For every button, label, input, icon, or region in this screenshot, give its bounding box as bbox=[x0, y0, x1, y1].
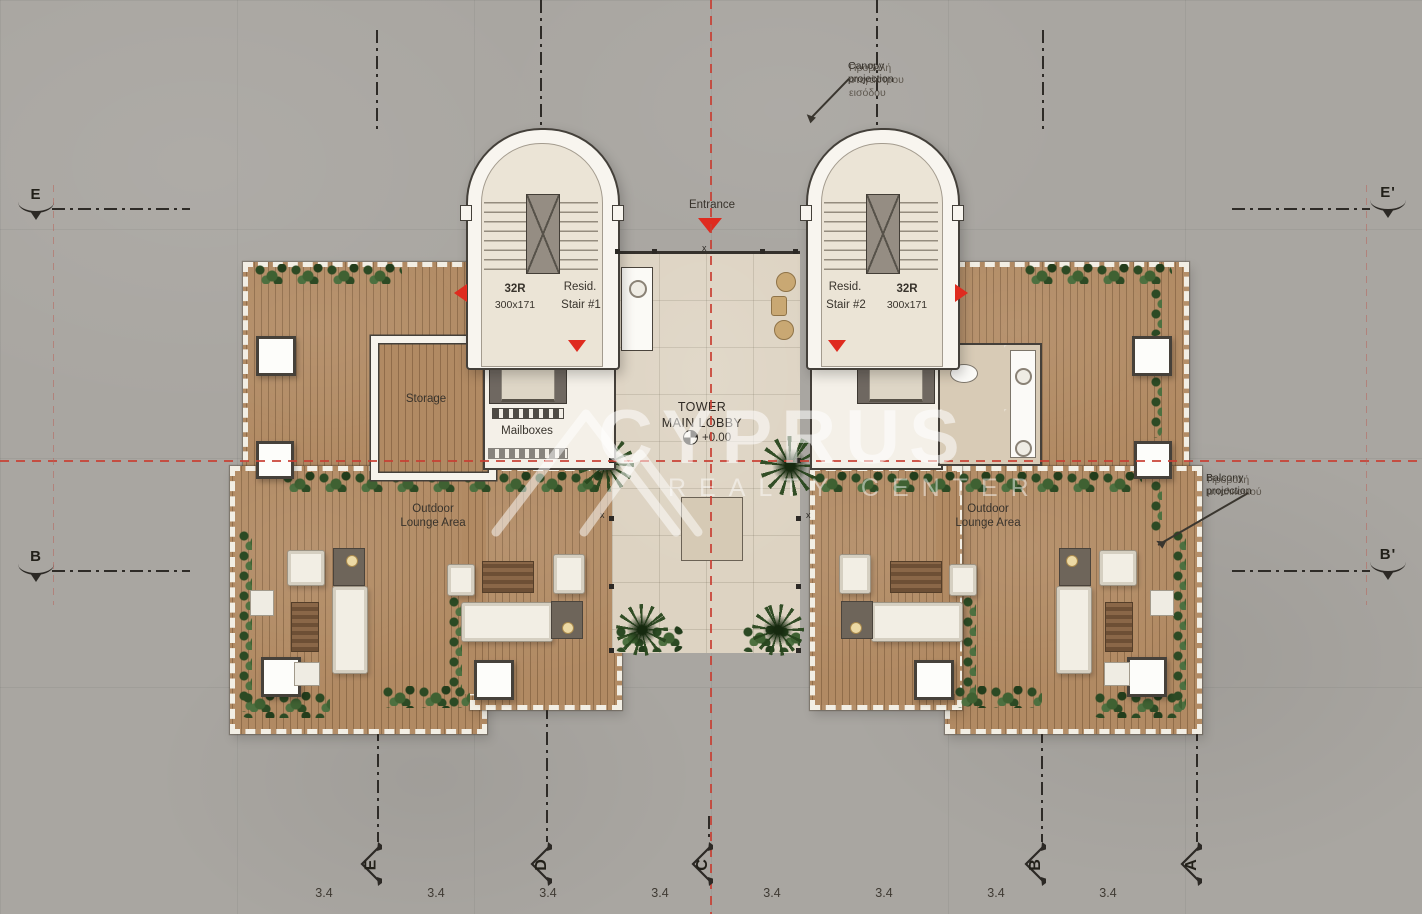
stair-core bbox=[866, 194, 900, 274]
sink bbox=[1015, 440, 1032, 457]
balcony-gr-line1: Προβολή bbox=[1207, 474, 1249, 486]
leader-arrow-icon bbox=[801, 109, 816, 124]
canopy-annotation-gr: Προβολή στεγάστρου εισόδου bbox=[849, 62, 904, 100]
stair-left-name2: Stair #1 bbox=[548, 298, 614, 312]
arch-tab bbox=[952, 205, 964, 221]
column bbox=[609, 516, 614, 521]
lounge-right-line1: Outdoor bbox=[967, 503, 1009, 515]
stair-right-name2: Stair #2 bbox=[813, 298, 879, 312]
lounge-right-line2: Lounge Area bbox=[955, 517, 1020, 529]
mailbox-units bbox=[492, 408, 564, 419]
coffee-table bbox=[482, 561, 534, 593]
column bbox=[652, 249, 657, 254]
stair-treads bbox=[484, 194, 526, 272]
armchair bbox=[553, 554, 585, 594]
marker-arrow-icon bbox=[1382, 571, 1394, 580]
plant-strip bbox=[1148, 376, 1162, 438]
armchair bbox=[839, 554, 871, 594]
lobby-rug bbox=[681, 497, 743, 561]
lobby-level: +0.00 bbox=[702, 431, 746, 445]
grid-letter: A bbox=[1183, 859, 1201, 871]
column bbox=[615, 249, 620, 254]
dimension-label: 3.4 bbox=[864, 886, 904, 900]
side-table bbox=[1150, 590, 1174, 616]
grid-line bbox=[376, 30, 378, 130]
coffee-table bbox=[890, 561, 942, 593]
exit-arrow-down-icon bbox=[568, 340, 586, 352]
stair-right-name1: Resid. bbox=[813, 280, 877, 294]
side-table bbox=[1104, 662, 1130, 686]
lounge-left-line1: Outdoor bbox=[412, 503, 454, 515]
grid-letter: B bbox=[1027, 859, 1045, 871]
plant-strip bbox=[380, 686, 470, 708]
mailboxes-label: Mailboxes bbox=[492, 424, 562, 438]
grid-letter: C bbox=[694, 859, 712, 871]
marker-arrow-icon bbox=[30, 573, 42, 582]
grid-line bbox=[52, 208, 190, 210]
lobby-title-line1: TOWER bbox=[678, 400, 726, 414]
lounge-left-line2: Lounge Area bbox=[400, 517, 465, 529]
plant-strip bbox=[236, 530, 252, 712]
canopy-projection-annotation: Canopy projection Προβολή στεγάστρου εισ… bbox=[848, 60, 938, 85]
section-marker-e-right: E' bbox=[1366, 184, 1410, 218]
exit-arrow-down-icon bbox=[828, 340, 846, 352]
lobby-title: TOWER MAIN LOBBY bbox=[652, 400, 752, 431]
armchair bbox=[1099, 550, 1137, 586]
column bbox=[609, 648, 614, 653]
column bbox=[609, 584, 614, 589]
leader-line bbox=[809, 78, 849, 119]
column bbox=[796, 584, 801, 589]
dimension-label: 3.4 bbox=[640, 886, 680, 900]
plant-strip bbox=[812, 472, 1142, 492]
plant-strip bbox=[952, 686, 1042, 708]
dimension-label: 3.4 bbox=[528, 886, 568, 900]
stair-treads bbox=[896, 194, 938, 272]
stair-treads bbox=[824, 194, 866, 272]
canopy-gr-line3: εισόδου bbox=[849, 87, 886, 99]
grid-line bbox=[1041, 730, 1043, 842]
grid-line bbox=[1232, 208, 1370, 210]
grid-marker-a: A bbox=[1176, 842, 1208, 888]
stool bbox=[774, 320, 794, 340]
dimension-label: 3.4 bbox=[976, 886, 1016, 900]
planter-box bbox=[474, 660, 514, 700]
grid-marker-d: D bbox=[526, 842, 558, 888]
grid-line bbox=[1042, 30, 1044, 130]
coffee-table bbox=[1105, 602, 1133, 652]
plant-strip bbox=[252, 264, 402, 284]
grid-marker-e: E bbox=[356, 842, 388, 888]
dimension-label: 3.4 bbox=[1088, 886, 1128, 900]
stair-left-name1: Resid. bbox=[548, 280, 612, 294]
plant-strip bbox=[1170, 530, 1186, 712]
column bbox=[793, 249, 798, 254]
door-threshold bbox=[488, 448, 568, 459]
dimension-label: 3.4 bbox=[304, 886, 344, 900]
grid-line bbox=[377, 728, 379, 842]
lamp bbox=[850, 622, 862, 634]
grid-marker-b: B bbox=[1020, 842, 1052, 888]
grid-letter: D bbox=[533, 859, 551, 871]
exit-arrow-left-icon bbox=[454, 284, 467, 302]
lamp bbox=[562, 622, 574, 634]
column bbox=[796, 516, 801, 521]
axis-line-red-horizontal bbox=[0, 460, 1422, 462]
lamp bbox=[346, 555, 358, 567]
planter-box bbox=[256, 336, 296, 376]
stair-treads bbox=[556, 194, 598, 272]
dimension-label: 3.4 bbox=[416, 886, 456, 900]
planter-box bbox=[914, 660, 954, 700]
storage-label: Storage bbox=[391, 392, 461, 406]
planter-box bbox=[1132, 336, 1172, 376]
grid-line bbox=[546, 706, 548, 842]
stair-core bbox=[526, 194, 560, 274]
stool bbox=[771, 296, 787, 316]
armchair bbox=[949, 564, 977, 596]
balcony-gr-line2: μπαλκονιού bbox=[1207, 486, 1262, 498]
canopy-gr-line1: Προβολή bbox=[849, 62, 891, 74]
column bbox=[760, 249, 765, 254]
sofa bbox=[461, 602, 553, 642]
lounge-label-left: Outdoor Lounge Area bbox=[383, 502, 483, 531]
arch-tab bbox=[612, 205, 624, 221]
marker-arrow-icon bbox=[1382, 209, 1394, 218]
side-console bbox=[1059, 548, 1091, 586]
stool bbox=[776, 272, 796, 292]
section-marker-e-left: E bbox=[14, 186, 58, 220]
planter-box bbox=[1127, 657, 1167, 697]
survey-x-mark: x bbox=[600, 510, 605, 520]
balcony-projection-annotation: Balcony projection Προβολή μπαλκονιού bbox=[1206, 472, 1296, 497]
basin bbox=[629, 280, 647, 298]
survey-x-mark: x bbox=[806, 510, 811, 520]
grid-line bbox=[540, 0, 542, 133]
grid-line bbox=[1232, 570, 1370, 572]
plant-strip bbox=[1022, 264, 1172, 284]
arch-tab bbox=[460, 205, 472, 221]
coffee-table bbox=[291, 602, 319, 652]
chaise-sofa bbox=[332, 586, 368, 674]
side-table bbox=[294, 662, 320, 686]
sink bbox=[1015, 368, 1032, 385]
stair-left-risers: 32R bbox=[485, 282, 545, 296]
plant-strip bbox=[1148, 480, 1162, 532]
lounge-label-right: Outdoor Lounge Area bbox=[938, 502, 1038, 531]
stair-right-size: 300x171 bbox=[875, 299, 939, 312]
grid-letter: E bbox=[362, 860, 380, 871]
armchair bbox=[447, 564, 475, 596]
exit-arrow-right-icon bbox=[955, 284, 968, 302]
axis-line-faint bbox=[1366, 185, 1367, 605]
sofa bbox=[871, 602, 963, 642]
level-crosshair-icon bbox=[683, 430, 698, 445]
lamp bbox=[1066, 555, 1078, 567]
column bbox=[796, 648, 801, 653]
survey-x-mark: x bbox=[702, 243, 707, 253]
chaise-sofa bbox=[1056, 586, 1092, 674]
armchair bbox=[287, 550, 325, 586]
stair-left-size: 300x171 bbox=[483, 299, 547, 312]
lobby-title-line2: MAIN LOBBY bbox=[662, 416, 742, 430]
axis-line-red-vertical bbox=[710, 0, 712, 914]
section-marker-b-left: B bbox=[14, 548, 58, 582]
axis-line-faint bbox=[53, 185, 54, 605]
dimension-label: 3.4 bbox=[752, 886, 792, 900]
grid-marker-c: C bbox=[687, 842, 719, 888]
balcony-annotation-gr: Προβολή μπαλκονιού bbox=[1207, 474, 1262, 499]
canopy-gr-line2: στεγάστρου bbox=[849, 74, 904, 86]
stair-right-risers: 32R bbox=[877, 282, 937, 296]
floor-plan: x x x TOWER MAIN LOBBY +0.00 Storage Mai… bbox=[0, 0, 1422, 914]
arch-tab bbox=[800, 205, 812, 221]
marker-arrow-icon bbox=[30, 211, 42, 220]
plant-strip bbox=[1148, 288, 1162, 336]
side-console bbox=[333, 548, 365, 586]
entrance-label: Entrance bbox=[672, 198, 752, 212]
side-table bbox=[250, 590, 274, 616]
section-marker-b-right: B' bbox=[1366, 546, 1410, 580]
grid-line bbox=[52, 570, 190, 572]
grid-line bbox=[1196, 728, 1198, 842]
